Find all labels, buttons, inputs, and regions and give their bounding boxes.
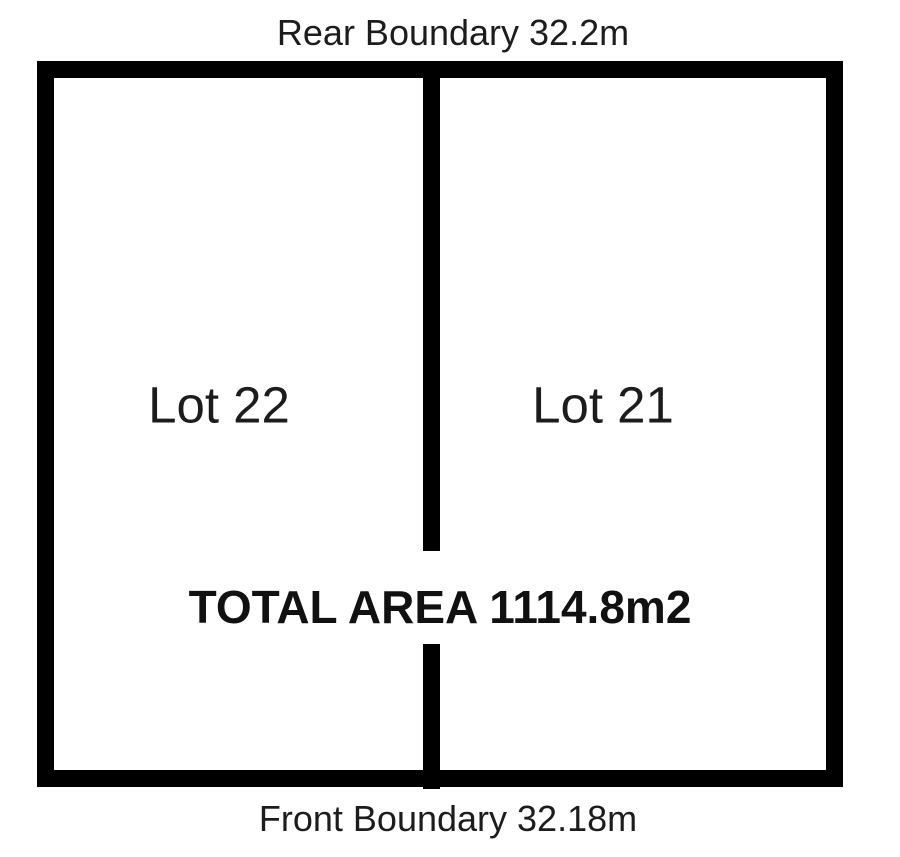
total-area-label: TOTAL AREA 1114.8m2 — [189, 584, 692, 630]
rear-boundary-label: Rear Boundary 32.2m — [277, 15, 629, 51]
lot-plan-diagram: Rear Boundary 32.2m Lot 22 Lot 21 TOTAL … — [0, 0, 900, 857]
lot-22-label: Lot 22 — [148, 380, 290, 431]
lot-divider-lower — [423, 644, 440, 789]
lot-21-label: Lot 21 — [532, 380, 674, 431]
lot-divider-upper — [423, 61, 440, 551]
front-boundary-label: Front Boundary 32.18m — [259, 801, 637, 837]
